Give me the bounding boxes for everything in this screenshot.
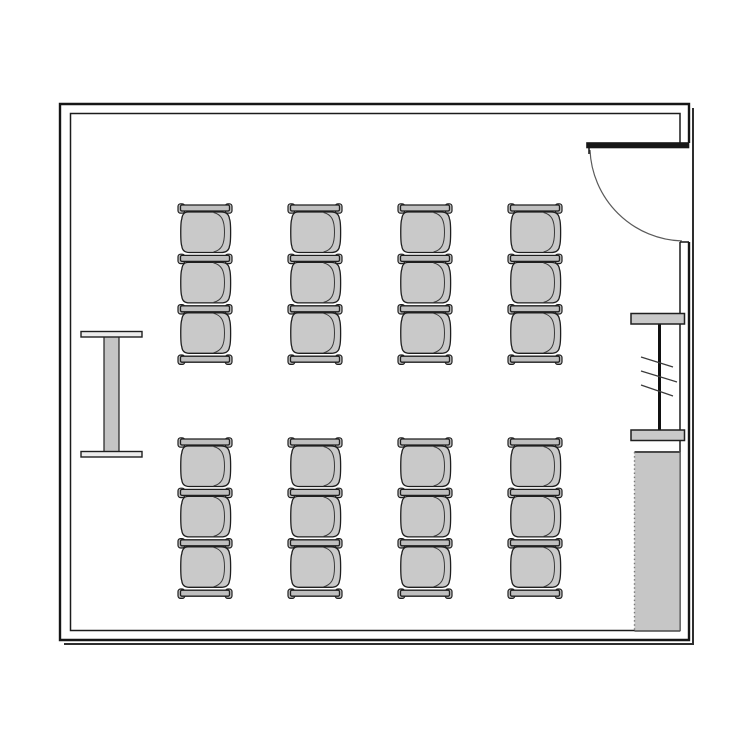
chair-seat	[511, 547, 561, 588]
bar-body	[181, 306, 230, 312]
chair-group-row2-col4[interactable]	[508, 438, 562, 599]
chair[interactable]	[181, 313, 231, 354]
bar-body	[291, 590, 340, 596]
chair-seat	[181, 496, 231, 537]
bar-body	[291, 489, 340, 495]
screen-bottom-bracket	[631, 430, 685, 441]
chair-group-row1-col2[interactable]	[288, 204, 342, 365]
chair-seat	[291, 212, 341, 253]
chair-group-row1-col4[interactable]	[508, 204, 562, 365]
bar-body	[511, 306, 560, 312]
chair[interactable]	[181, 446, 231, 487]
table-bottom-edge	[81, 452, 142, 458]
chair-seat	[401, 446, 451, 487]
chair-seat	[181, 547, 231, 588]
bar-body	[511, 205, 560, 211]
chair-group-row1-col1[interactable]	[178, 204, 232, 365]
chair-group-row2-col1[interactable]	[178, 438, 232, 599]
floor-plan	[0, 0, 750, 750]
bar-body	[401, 489, 450, 495]
chair[interactable]	[291, 262, 341, 303]
chair-seat	[291, 262, 341, 303]
chair-seat	[511, 496, 561, 537]
door-leaf[interactable]	[587, 143, 690, 149]
chair-seat	[181, 212, 231, 253]
bar-body	[181, 439, 230, 445]
chair-seat	[511, 262, 561, 303]
chair[interactable]	[401, 446, 451, 487]
bar-body	[401, 255, 450, 261]
chair-seat	[291, 496, 341, 537]
chair[interactable]	[511, 212, 561, 253]
bar-body	[181, 590, 230, 596]
chair[interactable]	[511, 496, 561, 537]
chair-seat	[511, 212, 561, 253]
chair-group-row2-col3[interactable]	[398, 438, 452, 599]
chair-seat	[401, 313, 451, 354]
bar-body	[401, 439, 450, 445]
bar-body	[181, 205, 230, 211]
bar-body	[181, 255, 230, 261]
chair[interactable]	[181, 262, 231, 303]
bar-body	[401, 356, 450, 362]
chair-seat	[401, 547, 451, 588]
floor-plan-canvas	[0, 0, 750, 750]
chair[interactable]	[511, 446, 561, 487]
bar-body	[511, 590, 560, 596]
chair[interactable]	[401, 262, 451, 303]
bar-body	[511, 255, 560, 261]
table-stem	[104, 337, 119, 453]
bar-body	[401, 590, 450, 596]
bar-body	[401, 540, 450, 546]
chair-seat	[401, 212, 451, 253]
chair[interactable]	[181, 496, 231, 537]
chair[interactable]	[511, 313, 561, 354]
chair[interactable]	[291, 313, 341, 354]
counter[interactable]	[635, 452, 681, 631]
chair[interactable]	[291, 496, 341, 537]
bar-body	[401, 306, 450, 312]
bar-body	[291, 439, 340, 445]
screen-top-bracket	[631, 314, 685, 325]
chair[interactable]	[181, 547, 231, 588]
chair[interactable]	[511, 547, 561, 588]
chair[interactable]	[291, 446, 341, 487]
chair-seat	[401, 496, 451, 537]
bar-body	[291, 255, 340, 261]
bar-body	[181, 489, 230, 495]
counter-body	[635, 452, 681, 631]
bar-body	[181, 356, 230, 362]
bar-body	[401, 205, 450, 211]
chair-seat	[291, 313, 341, 354]
bar-body	[291, 205, 340, 211]
chair[interactable]	[401, 496, 451, 537]
bar-body	[181, 540, 230, 546]
chair[interactable]	[511, 262, 561, 303]
bar-body	[511, 439, 560, 445]
bar-body	[511, 540, 560, 546]
bar-body	[291, 306, 340, 312]
chair-group-row2-col2[interactable]	[288, 438, 342, 599]
bar-body	[291, 540, 340, 546]
chair-seat	[181, 313, 231, 354]
chair[interactable]	[291, 212, 341, 253]
chair-seat	[401, 262, 451, 303]
chair-seat	[511, 313, 561, 354]
chair-seat	[291, 547, 341, 588]
chair-seat	[291, 446, 341, 487]
chair[interactable]	[181, 212, 231, 253]
chair-seat	[181, 262, 231, 303]
chair[interactable]	[401, 547, 451, 588]
chair-seat	[181, 446, 231, 487]
bar-body	[291, 356, 340, 362]
chair[interactable]	[401, 313, 451, 354]
bar-body	[511, 356, 560, 362]
chair[interactable]	[401, 212, 451, 253]
chair[interactable]	[291, 547, 341, 588]
chair-seat	[511, 446, 561, 487]
chair-group-row1-col3[interactable]	[398, 204, 452, 365]
table-top-edge	[81, 332, 142, 338]
bar-body	[511, 489, 560, 495]
